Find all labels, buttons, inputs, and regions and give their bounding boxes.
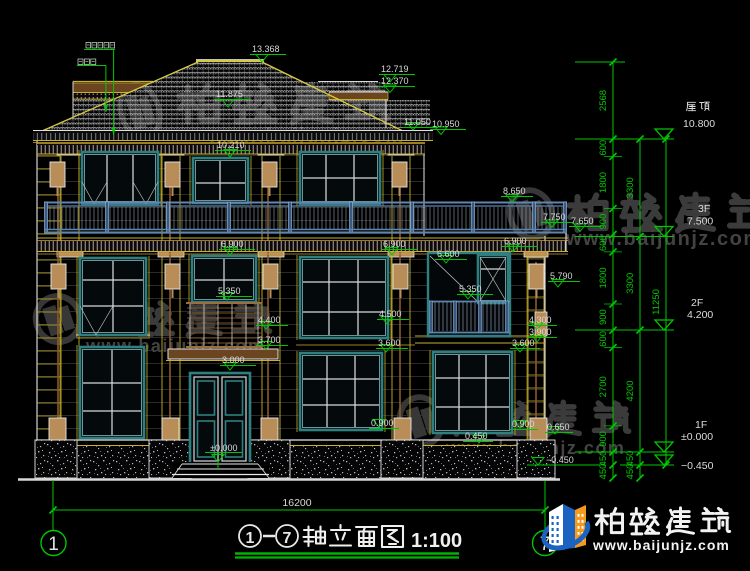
svg-text:3.700: 3.700 — [258, 335, 281, 345]
svg-text:3300: 3300 — [625, 273, 636, 294]
svg-text:450: 450 — [598, 464, 609, 480]
svg-text:±0.000: ±0.000 — [210, 443, 237, 453]
svg-text:8.650: 8.650 — [503, 186, 526, 196]
svg-text:900: 900 — [598, 431, 609, 447]
svg-text:13.368: 13.368 — [252, 44, 280, 54]
svg-text:11.875: 11.875 — [216, 89, 243, 99]
svg-text:1:100: 1:100 — [411, 530, 462, 552]
svg-text:3.900: 3.900 — [529, 327, 552, 337]
svg-text:−0.450: −0.450 — [546, 455, 574, 465]
svg-text:11250: 11250 — [651, 289, 662, 315]
svg-text:0.900: 0.900 — [512, 419, 535, 429]
svg-text:0.900: 0.900 — [371, 418, 394, 428]
svg-text:16200: 16200 — [282, 497, 311, 509]
svg-text:12.370: 12.370 — [381, 76, 409, 86]
svg-text:6.900: 6.900 — [383, 239, 406, 249]
svg-text:3300: 3300 — [625, 177, 636, 198]
svg-text:7.750: 7.750 — [543, 212, 566, 222]
svg-text:4.200: 4.200 — [687, 309, 713, 321]
svg-text:1800: 1800 — [598, 172, 609, 193]
svg-text:7.650: 7.650 — [571, 216, 594, 226]
svg-text:3F: 3F — [698, 203, 710, 215]
svg-text:600: 600 — [598, 140, 609, 156]
svg-text:1: 1 — [48, 534, 59, 555]
svg-text:0.450: 0.450 — [465, 431, 488, 441]
svg-text:7.500: 7.500 — [687, 216, 713, 228]
svg-text:2568: 2568 — [598, 90, 609, 111]
svg-text:11.050: 11.050 — [404, 117, 431, 127]
svg-text:3.000: 3.000 — [222, 355, 245, 365]
svg-text:5.350: 5.350 — [218, 286, 241, 296]
svg-text:1F: 1F — [695, 419, 707, 431]
svg-text:600: 600 — [598, 235, 609, 251]
svg-text:2700: 2700 — [598, 376, 609, 397]
svg-text:3.600: 3.600 — [512, 338, 535, 348]
svg-text:600: 600 — [598, 331, 609, 347]
svg-text:10.950: 10.950 — [432, 119, 460, 129]
svg-text:1800: 1800 — [598, 267, 609, 288]
svg-text:900: 900 — [598, 214, 609, 230]
svg-text:6.600: 6.600 — [437, 249, 460, 259]
svg-text:4.300: 4.300 — [529, 315, 552, 325]
svg-text:www.baijunjz.com: www.baijunjz.com — [565, 228, 750, 250]
svg-text:±0.000: ±0.000 — [681, 431, 713, 443]
svg-text:7: 7 — [283, 530, 292, 547]
svg-text:−0.450: −0.450 — [681, 460, 714, 472]
svg-text:4.500: 4.500 — [379, 309, 402, 319]
svg-text:6.900: 6.900 — [221, 239, 244, 249]
svg-text:5.790: 5.790 — [550, 271, 573, 281]
svg-text:0.650: 0.650 — [547, 422, 570, 432]
svg-text:www.baijunjz.com: www.baijunjz.com — [592, 537, 730, 553]
svg-text:10.210: 10.210 — [217, 140, 245, 150]
svg-text:900: 900 — [598, 309, 609, 325]
svg-text:4.400: 4.400 — [258, 315, 281, 325]
svg-text:12.719: 12.719 — [381, 64, 409, 74]
svg-text:2F: 2F — [691, 297, 703, 309]
svg-text:6.900: 6.900 — [504, 236, 527, 246]
svg-text:5.350: 5.350 — [459, 284, 482, 294]
svg-text:450: 450 — [625, 464, 636, 480]
svg-text:4200: 4200 — [625, 380, 636, 401]
svg-text:10.800: 10.800 — [683, 118, 715, 130]
svg-text:1: 1 — [246, 530, 255, 547]
svg-text:3.600: 3.600 — [378, 338, 401, 348]
